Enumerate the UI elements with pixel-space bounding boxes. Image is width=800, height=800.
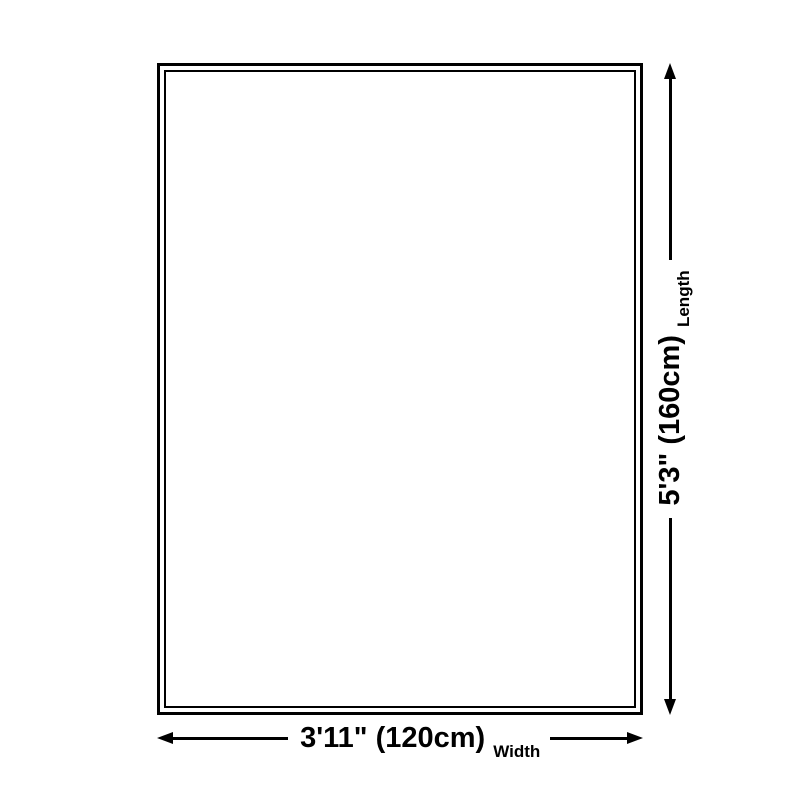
width-label: Width	[493, 743, 540, 760]
arrow-right-icon	[627, 732, 643, 744]
arrow-down-icon	[664, 699, 676, 715]
length-label: Length	[675, 270, 692, 327]
length-dimension-line	[669, 79, 672, 260]
length-value: 5'3" (160cm)	[656, 335, 685, 506]
arrow-left-icon	[157, 732, 173, 744]
rug-outline	[157, 63, 643, 715]
size-diagram: 5'3" (160cm) Length 3'11" (120cm) Width	[0, 0, 800, 800]
width-value: 3'11" (120cm)	[300, 724, 485, 753]
length-dimension-line	[669, 518, 672, 699]
width-dimension: 3'11" (120cm) Width	[157, 718, 643, 758]
width-dimension-line	[550, 737, 627, 740]
rug-outline-inner	[164, 70, 636, 708]
width-dimension-line	[173, 737, 288, 740]
arrow-up-icon	[664, 63, 676, 79]
length-dimension: 5'3" (160cm) Length	[650, 63, 690, 715]
